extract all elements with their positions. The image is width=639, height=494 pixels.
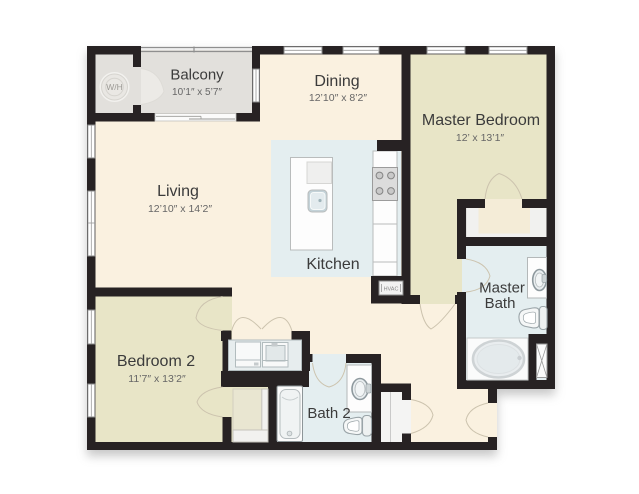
svg-text:Master Bedroom: Master Bedroom [422,112,540,129]
svg-text:12’10″ x 8’2″: 12’10″ x 8’2″ [309,92,368,104]
svg-text:Living: Living [157,183,199,200]
svg-text:Master: Master [479,280,525,297]
svg-text:HVAC: HVAC [384,287,399,293]
svg-text:10’1″ x 5’7″: 10’1″ x 5’7″ [172,87,222,98]
svg-text:Bath 2: Bath 2 [307,405,350,422]
svg-text:Bedroom 2: Bedroom 2 [117,353,195,370]
svg-text:Bath: Bath [485,295,516,312]
svg-text:Kitchen: Kitchen [306,256,359,273]
svg-text:12’10″ x 14’2″: 12’10″ x 14’2″ [148,203,212,215]
svg-text:Balcony: Balcony [170,67,224,84]
svg-text:W/H: W/H [106,82,123,92]
svg-text:Dining: Dining [314,73,359,90]
svg-text:12’ x 13’1″: 12’ x 13’1″ [456,132,505,144]
svg-text:11’7″ x 13’2″: 11’7″ x 13’2″ [128,373,186,385]
